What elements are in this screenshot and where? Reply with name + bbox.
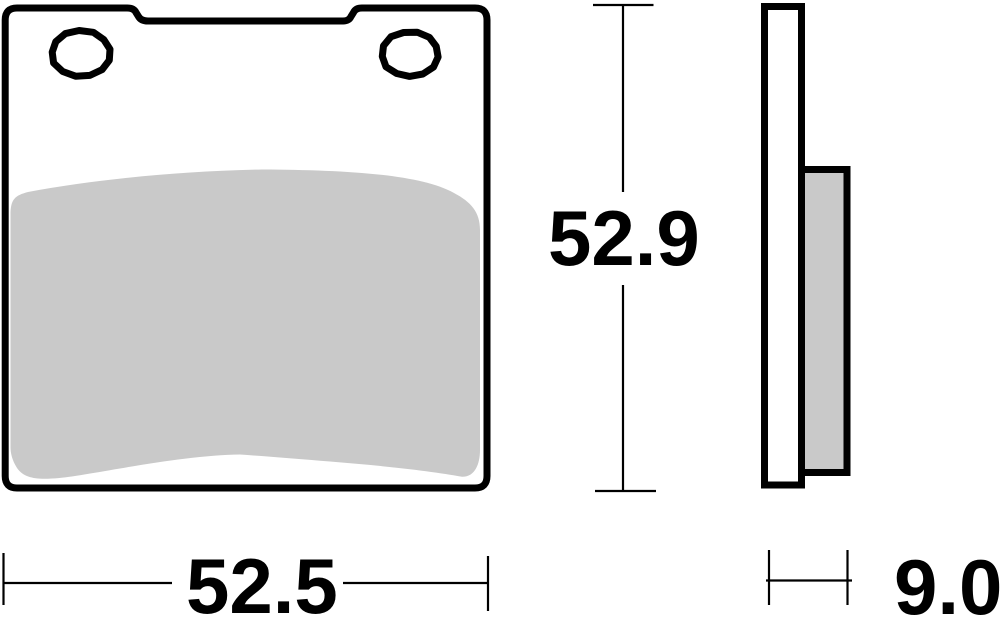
svg-text:52.5: 52.5: [186, 542, 338, 618]
svg-text:9.0: 9.0: [894, 543, 1000, 618]
svg-text:52.9: 52.9: [548, 194, 700, 282]
